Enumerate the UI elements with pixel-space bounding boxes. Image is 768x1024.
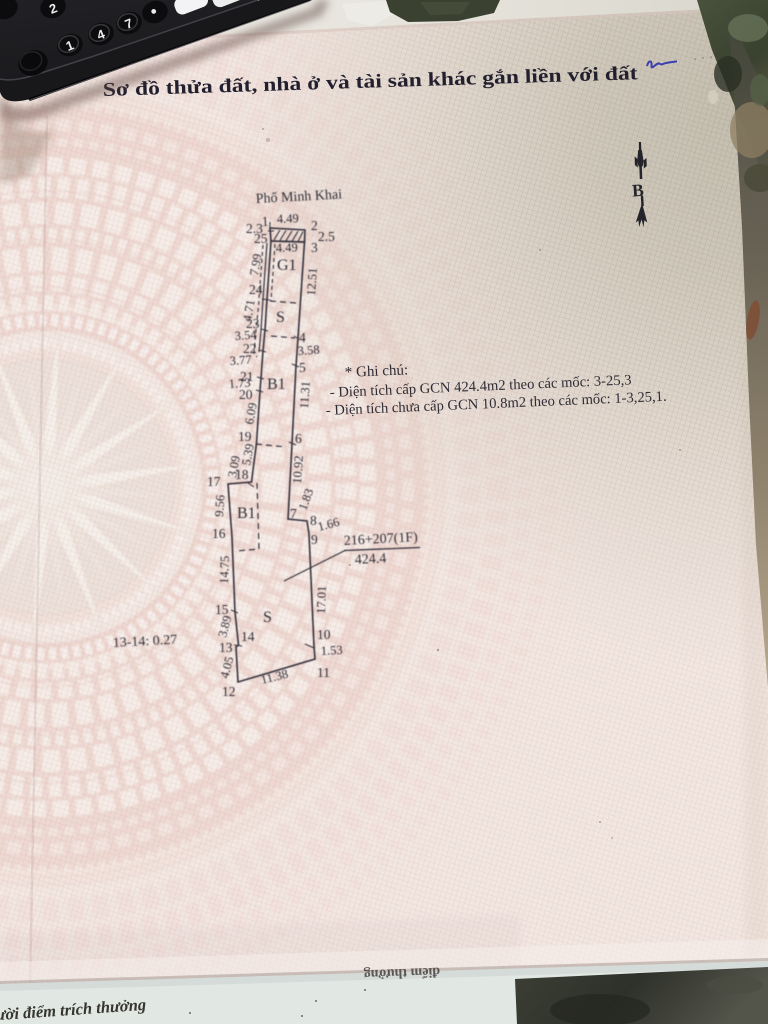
svg-text:4.49: 4.49 [276,240,298,255]
svg-text:1.73: 1.73 [228,376,251,391]
svg-text:* Ghi chú:: * Ghi chú: [344,362,408,381]
svg-text:3.77: 3.77 [229,353,252,368]
svg-text:424.4: 424.4 [354,551,386,568]
svg-text:2.5: 2.5 [318,229,335,244]
svg-text:10.92: 10.92 [290,455,306,484]
svg-text:4.49: 4.49 [277,211,299,226]
svg-text:2: 2 [311,218,318,233]
svg-text:S: S [263,609,272,626]
svg-text:B1: B1 [267,376,286,393]
svg-text:25: 25 [254,231,268,246]
svg-text:11.31: 11.31 [297,381,313,410]
svg-text:12.51: 12.51 [304,267,320,296]
svg-text:10: 10 [317,627,331,642]
svg-text:B: B [631,180,644,201]
svg-text:B1: B1 [237,505,256,522]
svg-text:14: 14 [241,629,255,644]
svg-text:17.01: 17.01 [314,586,329,615]
svg-text:9.56: 9.56 [212,494,227,517]
svg-text:16: 16 [212,526,226,541]
svg-text:6: 6 [295,431,302,446]
svg-text:9: 9 [311,532,318,547]
svg-text:17: 17 [207,474,221,489]
svg-text:1.53: 1.53 [320,643,343,658]
svg-text:G1: G1 [277,257,297,274]
svg-text:3: 3 [311,240,318,255]
svg-text:3.58: 3.58 [297,343,320,358]
svg-text:điểm thưởng: điểm thưởng [363,964,440,982]
svg-text:12: 12 [222,684,236,699]
svg-text:5: 5 [299,360,306,375]
svg-text:11: 11 [317,665,330,680]
svg-text:24: 24 [249,282,263,297]
svg-text:13: 13 [219,640,233,655]
svg-text:14.75: 14.75 [217,556,232,585]
svg-text:3.54: 3.54 [234,327,258,343]
svg-text:S: S [276,309,285,326]
svg-text:19: 19 [238,429,252,444]
